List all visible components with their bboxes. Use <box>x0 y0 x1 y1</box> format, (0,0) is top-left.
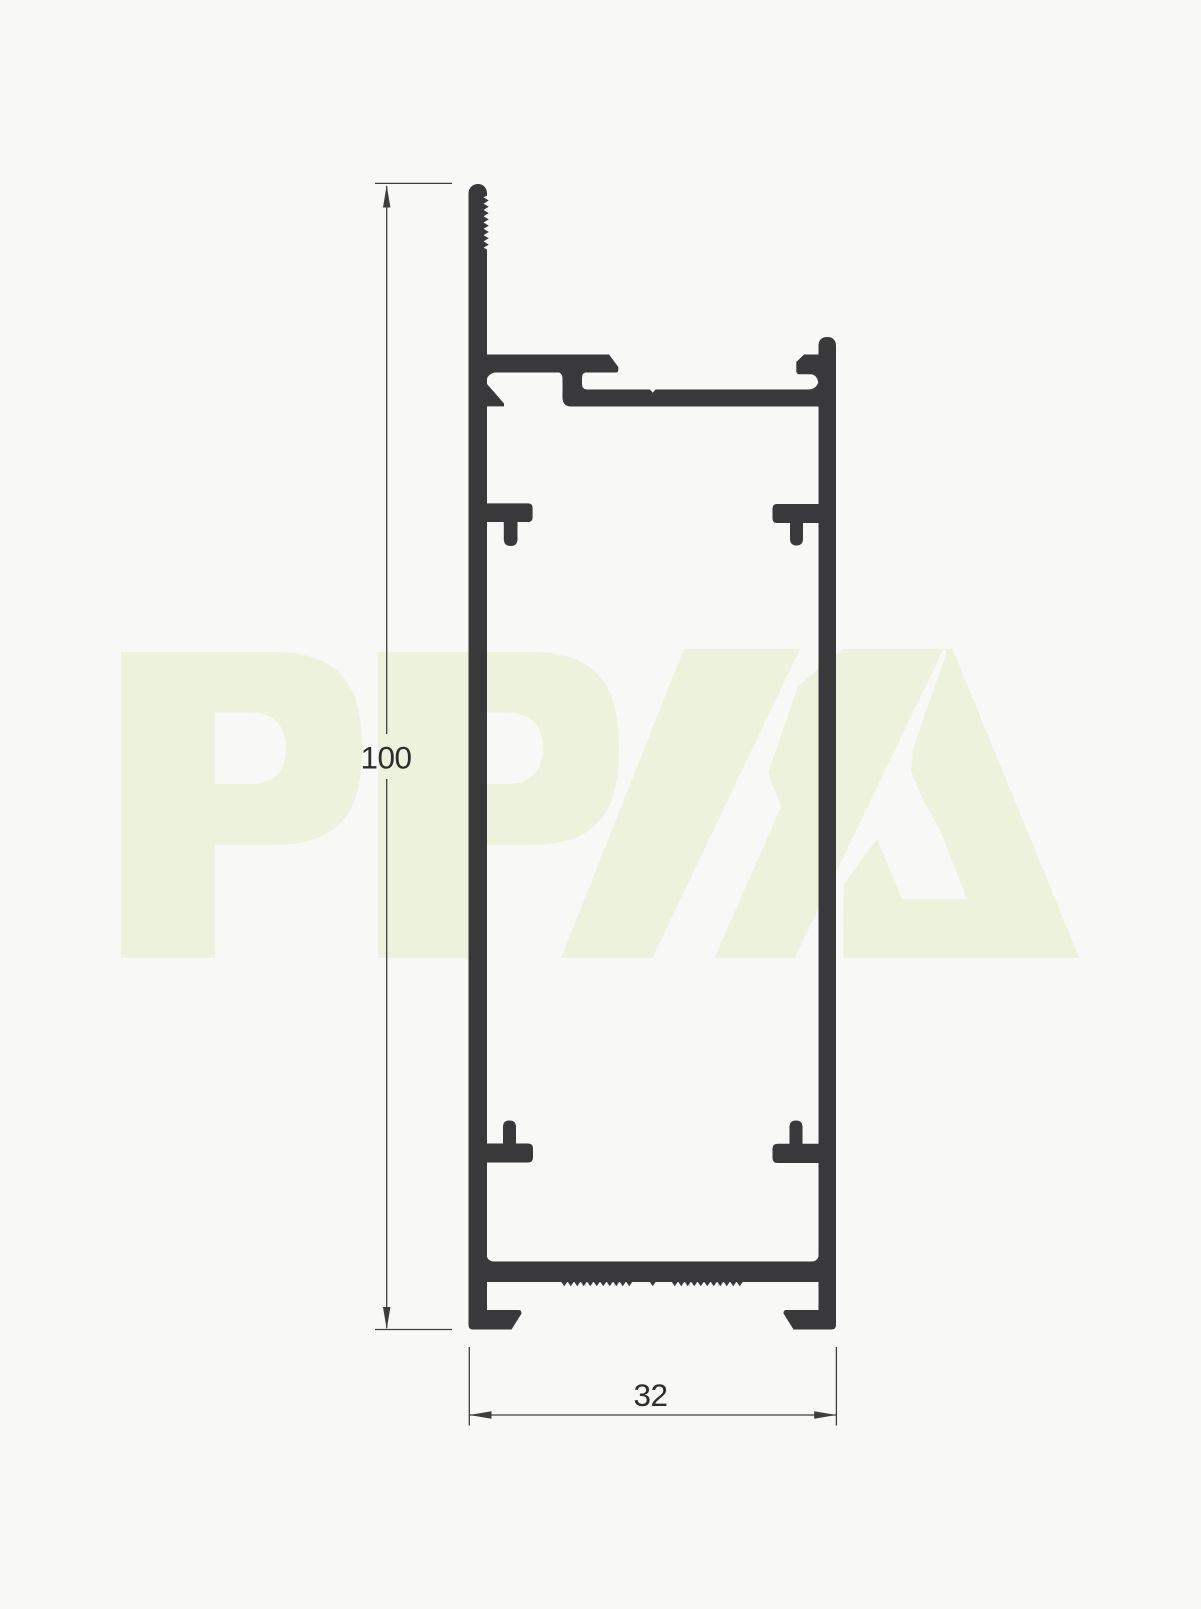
svg-text:32: 32 <box>633 1377 667 1413</box>
svg-text:100: 100 <box>360 740 411 776</box>
